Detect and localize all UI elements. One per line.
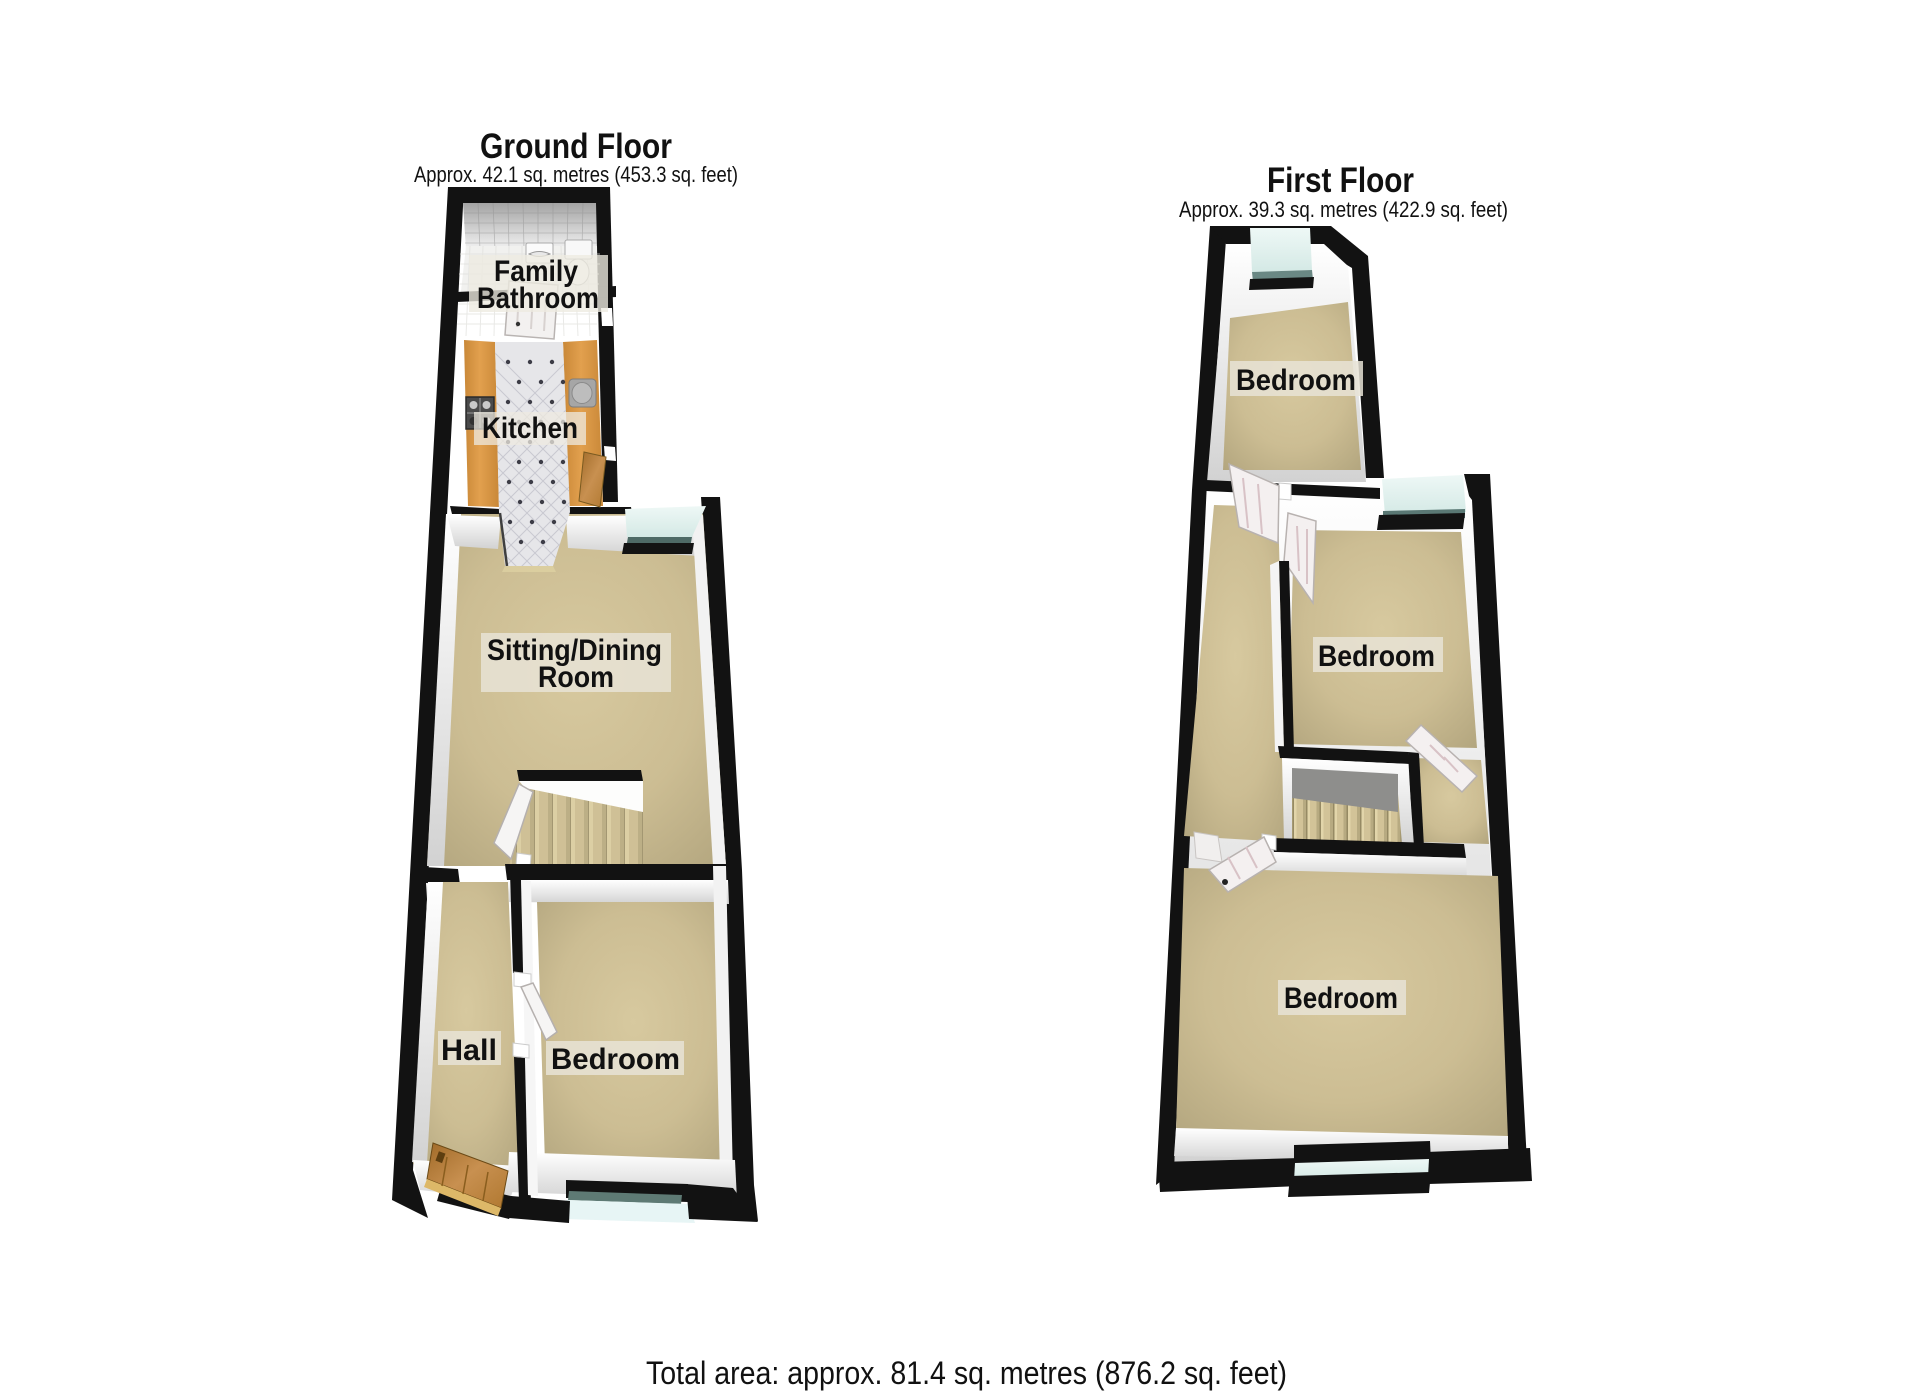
svg-text:Bathroom: Bathroom bbox=[477, 282, 599, 315]
svg-text:Room: Room bbox=[538, 661, 614, 694]
svg-text:Bedroom: Bedroom bbox=[1318, 640, 1435, 673]
svg-text:Approx. 42.1 sq. metres (453.3: Approx. 42.1 sq. metres (453.3 sq. feet) bbox=[414, 162, 738, 187]
svg-text:Bedroom: Bedroom bbox=[1236, 364, 1356, 397]
svg-text:Ground Floor: Ground Floor bbox=[480, 127, 672, 166]
svg-text:Total area: approx. 81.4 sq. m: Total area: approx. 81.4 sq. metres (876… bbox=[646, 1355, 1287, 1391]
svg-text:Kitchen: Kitchen bbox=[482, 412, 578, 445]
svg-text:Approx. 39.3 sq. metres (422.9: Approx. 39.3 sq. metres (422.9 sq. feet) bbox=[1179, 197, 1508, 222]
svg-text:Hall: Hall bbox=[441, 1034, 497, 1067]
svg-text:Bedroom: Bedroom bbox=[1284, 982, 1398, 1015]
svg-text:First Floor: First Floor bbox=[1267, 161, 1414, 200]
svg-text:Bedroom: Bedroom bbox=[551, 1043, 680, 1076]
